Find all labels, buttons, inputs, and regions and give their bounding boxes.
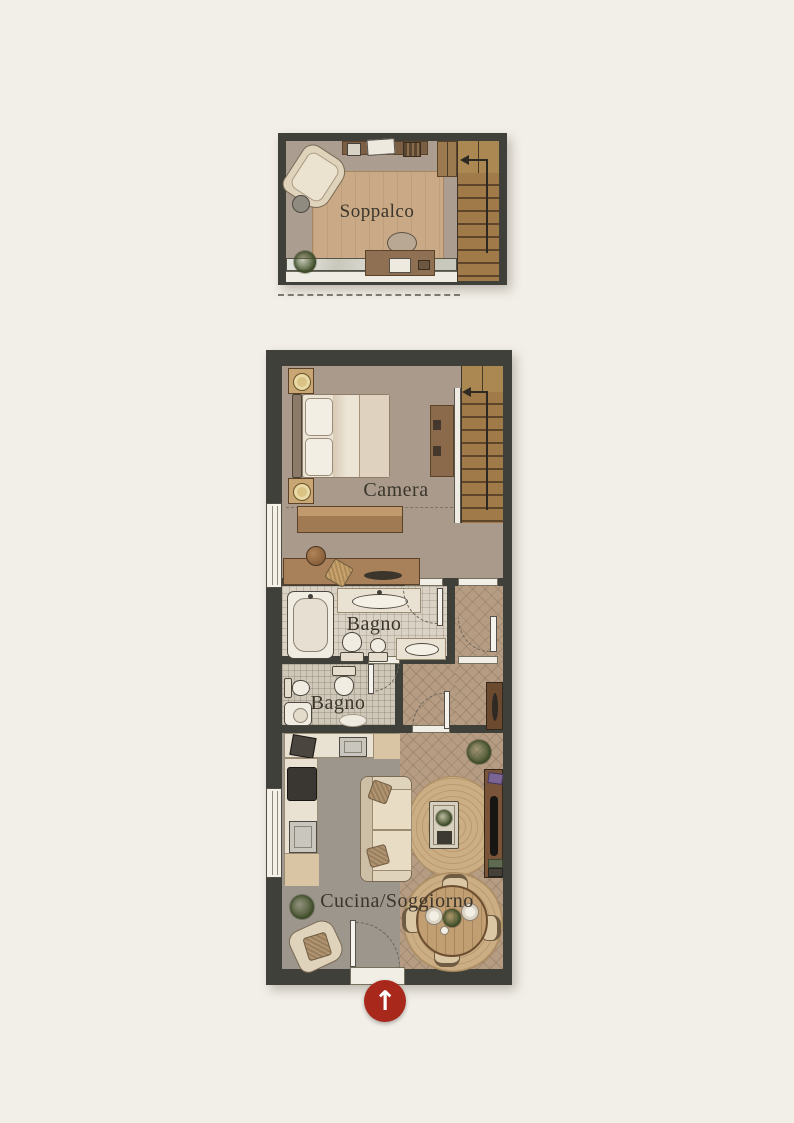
living-window <box>266 788 282 878</box>
sink-bowl <box>344 741 362 753</box>
bagno1-door-leaf <box>437 588 443 626</box>
armchair-cushion <box>302 931 332 961</box>
room-label-bagno-2: Bagno <box>288 692 388 712</box>
console-books <box>488 859 503 868</box>
sink-faucet <box>377 590 382 595</box>
coffee-table <box>429 801 459 849</box>
coffee-machine <box>289 734 316 759</box>
room-label-camera: Camera <box>336 479 456 501</box>
hallway-top-opening <box>458 578 498 586</box>
stairs-direction-arrow-icon <box>461 366 503 523</box>
kitchen-sink-2 <box>289 821 317 853</box>
main-floor-plan: Camera Bagno Bagno <box>266 350 512 985</box>
bed-blanket <box>359 395 389 477</box>
living-plant <box>467 740 491 764</box>
mezzanine-plant <box>294 251 316 273</box>
bathtub-faucet <box>308 594 313 599</box>
mezzanine-plan: Soppalco <box>278 133 507 285</box>
bedside-lamp <box>293 373 311 391</box>
toilet <box>342 632 362 652</box>
bidet-base <box>368 652 388 662</box>
television <box>490 796 498 856</box>
kitchen-counter-top <box>284 733 398 758</box>
hallway-door-leaf <box>490 616 497 652</box>
kitchen-sink <box>339 737 367 757</box>
bathtub-basin <box>293 598 328 652</box>
window-frame-line <box>272 506 278 585</box>
sink-bowl <box>294 826 312 848</box>
console-decor <box>492 693 498 721</box>
shelf-frame <box>347 143 361 156</box>
toilet-tank <box>332 666 356 676</box>
coffee-table-book <box>437 831 452 844</box>
desk-item <box>433 446 441 456</box>
decor-tray <box>364 571 402 580</box>
bed-duvet-fold <box>333 395 347 477</box>
laptop <box>389 258 411 273</box>
stairs-direction-arrow-icon <box>457 141 499 281</box>
tv-console <box>484 769 503 878</box>
cooktop <box>287 767 317 801</box>
bedroom-window <box>266 503 282 588</box>
bed-pillow <box>305 398 333 436</box>
desk-item <box>418 260 430 270</box>
console-decor-purple <box>487 772 503 785</box>
kitchen-counter-left <box>284 758 318 884</box>
entrance-door-leaf <box>350 920 356 967</box>
room-label-bagno-1: Bagno <box>324 613 424 635</box>
window-frame-line <box>272 791 278 875</box>
vanity-sink <box>352 594 408 609</box>
hallway-threshold <box>458 656 498 664</box>
mezzanine-cabinet <box>437 141 457 177</box>
bidet <box>370 638 386 653</box>
console-books <box>488 868 503 877</box>
room-label-soppalco: Soppalco <box>312 201 442 223</box>
entrance-marker: ↑ <box>364 980 406 1022</box>
room-label-cucina-soggiorno: Cucina/Soggiorno <box>287 890 507 912</box>
floorplan-page: { "plan": { "type": "apartment-floor-pla… <box>0 0 794 1123</box>
shelf-books <box>403 142 421 157</box>
stairs-railing <box>454 388 461 523</box>
double-bed <box>302 394 390 478</box>
bagno2-door-leaf <box>368 664 374 694</box>
hall-console <box>486 682 503 730</box>
entrance-up-arrow-icon: ↑ <box>374 988 397 1015</box>
counter-wood-section <box>373 734 400 759</box>
shelf-paper <box>366 138 395 156</box>
floor-lamp <box>292 195 310 213</box>
desk-item <box>433 420 441 430</box>
dresser-top <box>298 507 402 516</box>
living-hall-door-leaf <box>444 691 450 729</box>
cup <box>440 926 449 935</box>
second-sink-counter <box>396 638 446 660</box>
toilet-tank <box>340 652 364 662</box>
bed-headboard <box>292 394 302 478</box>
bed-pillow <box>305 438 333 476</box>
decor-sphere <box>306 546 326 566</box>
bath-mat <box>339 714 367 727</box>
second-sink <box>405 643 439 656</box>
bedside-lamp <box>293 483 311 501</box>
mezzanine-void-dashed-line <box>278 294 460 296</box>
wall-shelf <box>342 141 428 155</box>
cabinet-divider <box>447 142 448 176</box>
bedroom-dresser <box>297 506 403 533</box>
mezzanine-desk <box>365 250 435 276</box>
camera-desk <box>430 405 454 477</box>
cabinet-wood-section <box>285 853 319 886</box>
coffee-table-plant <box>436 810 452 826</box>
